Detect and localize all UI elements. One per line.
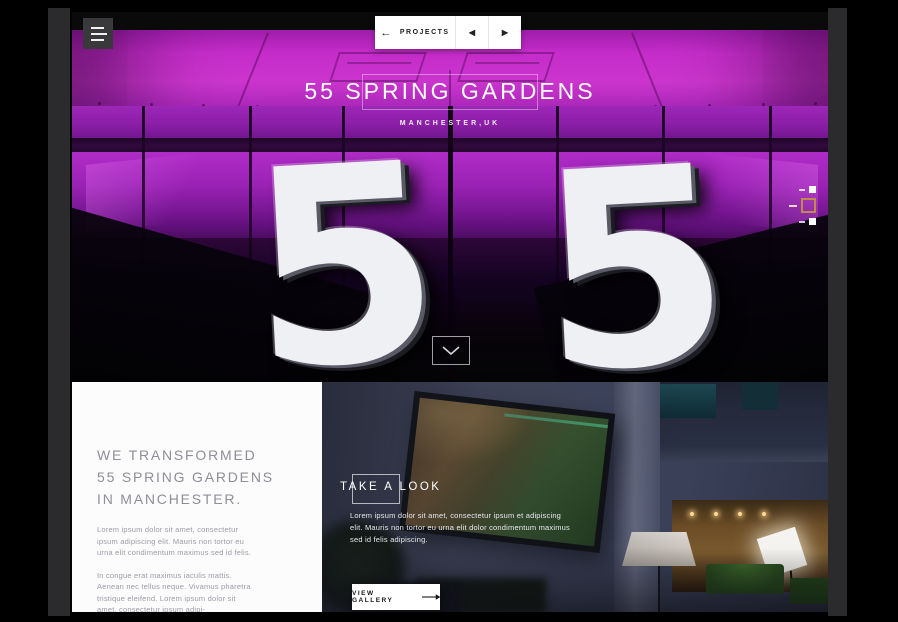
menu-button[interactable]: [83, 18, 113, 49]
project-nav: ← PROJECTS ◀ ▶: [375, 16, 521, 49]
prev-project-button[interactable]: ◀: [455, 16, 488, 49]
intro-paragraph: Lorem ipsum dolor sit amet, consectetur …: [97, 524, 257, 559]
big-numeral-5-right: 5: [534, 158, 735, 382]
intro-heading: WE TRANSFORMED 55 SPRING GARDENS IN MANC…: [97, 444, 298, 510]
pagination-dash: [789, 205, 797, 207]
pagination-item-active[interactable]: [789, 198, 816, 213]
intro-panel: WE TRANSFORMED 55 SPRING GARDENS IN MANC…: [72, 382, 322, 612]
page-subtitle: MANCHESTER,UK: [72, 120, 828, 127]
pagination-dash: [799, 189, 805, 191]
hamburger-icon: [91, 33, 107, 35]
hamburger-icon: [91, 27, 104, 29]
hamburger-icon: [91, 39, 104, 41]
projects-button-label: PROJECTS: [400, 29, 450, 36]
mockup-left-edge: [48, 8, 70, 616]
mockup-right-edge: [828, 8, 847, 616]
gallery-panel: TAKE A LOOK Lorem ipsum dolor sit amet, …: [322, 382, 828, 612]
caret-left-icon: ◀: [469, 28, 475, 37]
caret-right-icon: ▶: [502, 28, 508, 37]
slide-pagination: [772, 186, 816, 225]
big-numeral-5-left: 5: [244, 155, 445, 382]
mockup-stage: 5 5 55 SPRING GARDENS MANCHESTER,UK ← PR…: [0, 0, 898, 622]
intro-heading-line: IN MANCHESTER.: [97, 488, 298, 510]
pagination-square: [809, 218, 816, 225]
gallery-heading: TAKE A LOOK: [340, 481, 441, 493]
pagination-item[interactable]: [799, 186, 816, 193]
chevron-down-icon: [442, 346, 460, 355]
pagination-square: [809, 186, 816, 193]
scroll-down-indicator[interactable]: [432, 336, 470, 365]
intro-paragraph: In congue erat maximus iaculis mattis. A…: [97, 570, 257, 613]
view-gallery-button[interactable]: VIEW GALLERY: [352, 584, 440, 610]
arrow-right-icon: [422, 593, 440, 601]
page-title: 55 SPRING GARDENS: [72, 78, 828, 105]
projects-button[interactable]: ← PROJECTS: [375, 16, 455, 49]
next-project-button[interactable]: ▶: [488, 16, 521, 49]
gallery-paragraph: Lorem ipsum dolor sit amet, consectetur …: [350, 510, 570, 546]
pagination-dash: [799, 221, 805, 223]
pagination-square: [801, 198, 816, 213]
website-page: 5 5 55 SPRING GARDENS MANCHESTER,UK ← PR…: [72, 12, 828, 612]
view-gallery-label: VIEW GALLERY: [352, 590, 414, 604]
intro-heading-line: 55 SPRING GARDENS: [97, 466, 298, 488]
arrow-left-icon: ←: [380, 27, 393, 39]
pagination-item[interactable]: [799, 218, 816, 225]
intro-heading-line: WE TRANSFORMED: [97, 444, 298, 466]
hero-section: 5 5 55 SPRING GARDENS MANCHESTER,UK ← PR…: [72, 12, 828, 382]
